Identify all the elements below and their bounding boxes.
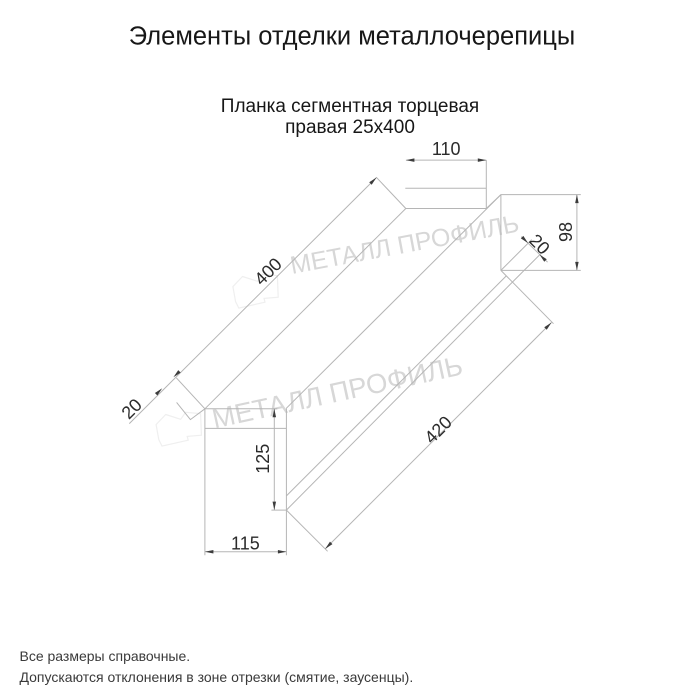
svg-text:Планка сегментная торцевая: Планка сегментная торцевая	[221, 96, 479, 117]
svg-text:420: 420	[421, 412, 456, 447]
svg-text:98: 98	[556, 222, 576, 242]
svg-text:МЕТАЛЛ ПРОФИЛЬ: МЕТАЛЛ ПРОФИЛЬ	[288, 210, 521, 280]
svg-text:Все размеры справочные.: Все размеры справочные.	[20, 648, 191, 664]
svg-text:правая 25х400: правая 25х400	[285, 117, 415, 138]
svg-text:400: 400	[250, 254, 285, 289]
svg-text:125: 125	[253, 444, 273, 474]
svg-text:МЕТАЛЛ ПРОФИЛЬ: МЕТАЛЛ ПРОФИЛЬ	[209, 350, 465, 435]
svg-text:110: 110	[432, 139, 461, 159]
svg-text:Допускаются отклонения в зоне: Допускаются отклонения в зоне отрезки (с…	[20, 669, 414, 685]
svg-text:Элементы отделки металлочерепи: Элементы отделки металлочерепицы	[129, 23, 575, 51]
svg-text:20: 20	[118, 395, 146, 423]
svg-text:20: 20	[525, 230, 553, 258]
svg-text:115: 115	[231, 534, 260, 554]
